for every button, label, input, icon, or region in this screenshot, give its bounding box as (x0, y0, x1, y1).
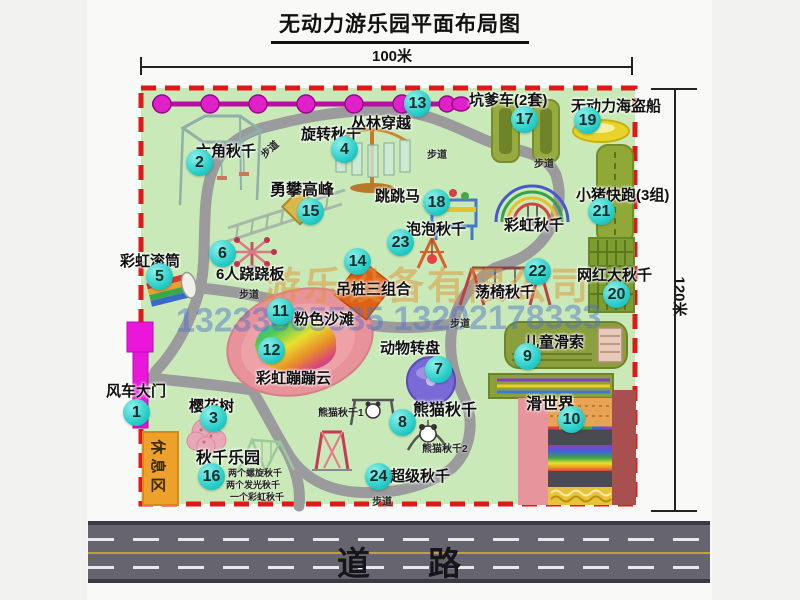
dimension-width-tick-right (631, 57, 633, 75)
attraction-label: 粉色沙滩 (294, 308, 354, 329)
attraction-badge: 7 (425, 356, 452, 383)
walkway-label: 步道 (534, 155, 554, 170)
attraction-badge: 21 (588, 198, 615, 225)
rainbow-swing-label: 彩虹秋千 (504, 214, 564, 235)
attraction-badge: 16 (198, 463, 225, 490)
attraction-badge: 12 (258, 337, 285, 364)
panda-swing-2-label: 熊猫秋千2 (422, 440, 468, 455)
attraction-badge: 17 (511, 106, 538, 133)
attraction-label: 动物转盘 (380, 337, 440, 358)
attraction-label: 勇攀高峰 (270, 176, 334, 200)
walkway-label: 步道 (427, 146, 447, 161)
attraction-label: 坑爹车(2套) (469, 89, 547, 110)
attraction-badge: 20 (603, 281, 630, 308)
attraction-badge: 14 (344, 248, 371, 275)
attraction-label: 泡泡秋千 (406, 218, 466, 239)
attraction-label: 熊猫秋千 (413, 396, 477, 420)
attraction-badge: 19 (574, 107, 601, 134)
page-title-wrap: 无动力游乐园平面布局图 (0, 8, 800, 44)
attraction-label: 小猪快跑(3组) (576, 184, 669, 205)
attraction-badge: 9 (514, 343, 541, 370)
walkway-label: 步道 (450, 315, 470, 330)
dimension-width-line (141, 66, 633, 68)
screenshot-stage: 无动力游乐园平面布局图 100米 120米 游乐设备有限公司 132338055… (0, 0, 800, 600)
dimension-width-tick-left (140, 57, 142, 75)
dimension-height-line (674, 89, 676, 512)
attraction-badge: 3 (200, 405, 227, 432)
attraction-label: 吊桩三组合 (336, 278, 411, 299)
dimension-height-label: 120米 (670, 267, 691, 327)
attraction-badge: 4 (331, 136, 358, 163)
attraction-label: 超级秋千 (390, 465, 450, 486)
attraction-badge: 1 (123, 399, 150, 426)
attraction-label: 彩虹蹦蹦云 (256, 367, 331, 388)
attraction-badge: 23 (387, 229, 414, 256)
attraction-label: 风车大门 (106, 380, 166, 401)
dimension-height-tick-bottom (651, 510, 697, 512)
attraction-badge: 6 (209, 240, 236, 267)
attraction-badge: 18 (423, 189, 450, 216)
attraction-badge: 22 (524, 258, 551, 285)
attraction-badge: 11 (267, 298, 294, 325)
attraction-label: 丛林穿越 (351, 112, 411, 133)
attraction-label: 荡椅秋千 (475, 281, 535, 302)
attraction-badge: 2 (186, 149, 213, 176)
attraction-badge: 13 (404, 90, 431, 117)
attraction-badge: 24 (365, 463, 392, 490)
rest-area-label: 休息区 (153, 433, 169, 503)
road-label: 道路 (88, 537, 710, 585)
walkway-label: 步道 (372, 493, 392, 508)
swing-park-item: 一个彩虹秋千 (230, 490, 284, 503)
road: 道路 (88, 521, 710, 583)
attraction-label: 跳跳马 (375, 185, 420, 206)
panda-swing-1-label: 熊猫秋千1 (318, 404, 364, 419)
attraction-badge: 5 (146, 263, 173, 290)
attraction-badge: 10 (558, 406, 585, 433)
dimension-width-label: 100米 (372, 45, 412, 66)
attraction-badge: 8 (389, 409, 416, 436)
attraction-badge: 15 (297, 198, 324, 225)
dimension-height-tick-top (651, 88, 697, 90)
page-title: 无动力游乐园平面布局图 (271, 8, 529, 44)
walkway-label: 步道 (239, 286, 259, 301)
